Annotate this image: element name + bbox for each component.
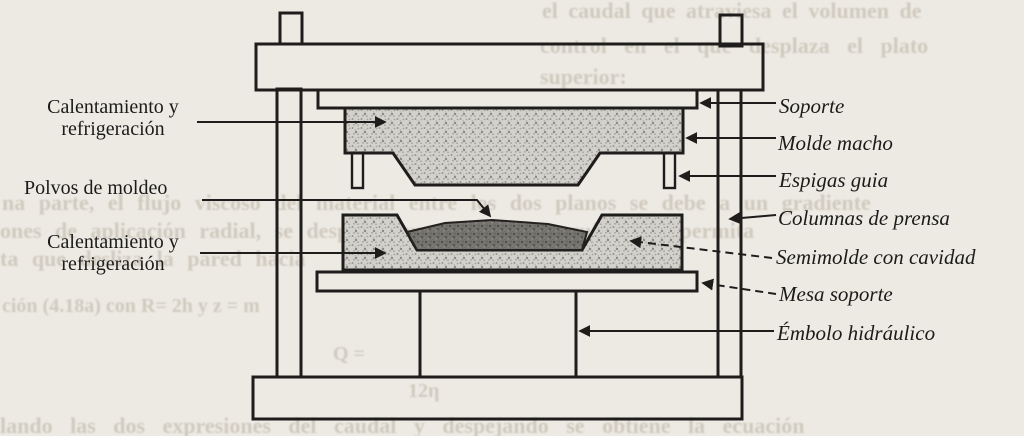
label-soporte: Soporte (779, 94, 844, 118)
label-mesa-soporte: Mesa soporte (778, 282, 893, 306)
label-semimolde-con-cavidad: Semimolde con cavidad (776, 245, 976, 269)
left-column-top-stub (280, 13, 302, 44)
label-espigas-guia: Espigas guia (778, 168, 888, 192)
label-embolo-hidraulico: Émbolo hidráulico (776, 321, 935, 345)
espiga-guia-left (352, 153, 363, 188)
embolo-hidraulico-shape (420, 291, 576, 377)
label-molde-macho: Molde macho (777, 131, 893, 155)
ghost-formula-fragment: 12η (408, 380, 439, 402)
espiga-guia-right (664, 153, 675, 188)
molde-macho-shape (345, 108, 683, 185)
ghost-formula-fragment: Q = (333, 343, 365, 365)
label-calentamiento-bottom-line2: refrigeración (61, 253, 164, 275)
label-polvos-de-moldeo: Polvos de moldeo (24, 177, 167, 199)
scanned-page: el caudal que atraviesa el volumen de co… (0, 0, 1024, 436)
mesa-soporte-plate (317, 272, 697, 291)
label-calentamiento-bottom-line1: Calentamiento y (47, 231, 179, 253)
ghost-line: ción (4.18a) con R= 2h y z = m (2, 295, 260, 317)
soporte-plate (318, 90, 697, 108)
ghost-line: superior: (540, 64, 627, 89)
label-calentamiento-top-line1: Calentamiento y (47, 96, 179, 118)
ghost-line: lando las dos expresiones del caudal y d… (0, 413, 805, 436)
label-calentamiento-top-line2: refrigeración (61, 118, 164, 140)
ghost-line: el caudal que atraviesa el volumen de (542, 0, 922, 23)
label-columnas-de-prensa: Columnas de prensa (778, 206, 950, 230)
press-diagram: el caudal que atraviesa el volumen de co… (0, 0, 1024, 436)
